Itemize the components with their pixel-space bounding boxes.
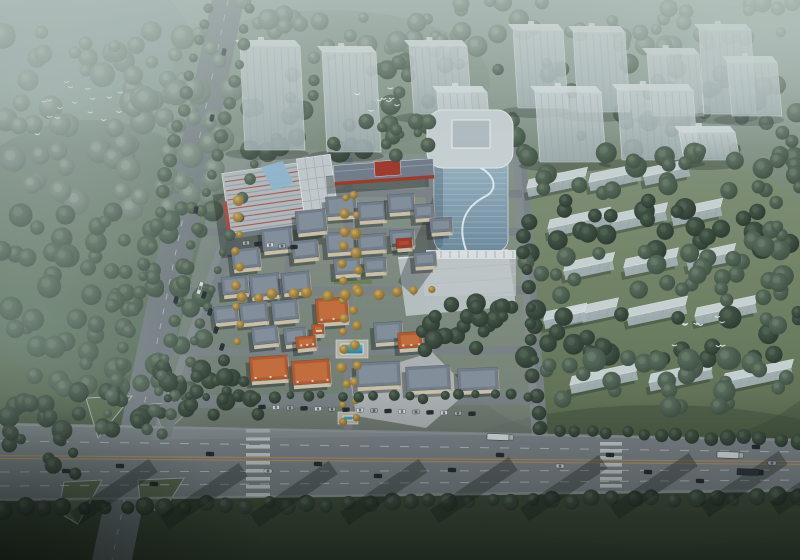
tree-highlight — [235, 213, 239, 217]
tree-highlight — [777, 436, 782, 441]
car — [752, 445, 760, 449]
car-glass — [303, 407, 305, 410]
tree-highlight — [166, 335, 172, 341]
tree-highlight — [772, 319, 779, 326]
tree-highlight — [37, 28, 42, 33]
tree-highlight — [687, 431, 693, 437]
tree-highlight — [471, 343, 477, 349]
tree-highlight — [170, 136, 175, 141]
roof-dormer — [320, 330, 322, 332]
tree-highlight — [116, 136, 126, 146]
tree-highlight — [606, 374, 613, 381]
tree-highlight — [773, 276, 781, 284]
tree-highlight — [391, 392, 395, 396]
tree-highlight — [171, 50, 177, 56]
building-roof-ridge — [433, 220, 450, 229]
tree-highlight — [216, 131, 222, 137]
car-glass — [281, 245, 284, 248]
tree-highlight — [763, 275, 770, 282]
tree-highlight — [30, 339, 39, 348]
tree-highlight — [773, 155, 779, 161]
car-glass — [345, 408, 347, 411]
building-roof-ridge — [399, 241, 409, 246]
tree-highlight — [251, 394, 256, 399]
tree-highlight — [455, 390, 459, 394]
tree-highlight — [606, 211, 612, 217]
tree-highlight — [617, 309, 623, 315]
tree-highlight — [747, 234, 755, 242]
tree-highlight — [220, 113, 226, 119]
tree-highlight — [394, 288, 398, 292]
tree-highlight — [757, 239, 765, 247]
tree-highlight — [55, 435, 60, 440]
tree-highlight — [774, 383, 780, 389]
tree-highlight — [492, 391, 496, 395]
tree-highlight — [130, 39, 137, 46]
tree-highlight — [206, 204, 214, 212]
truck-box — [487, 433, 509, 440]
car — [448, 468, 456, 472]
tree-highlight — [60, 160, 67, 167]
tree-highlight — [681, 352, 690, 361]
tree-highlight — [494, 65, 499, 70]
tree-highlight — [203, 136, 211, 144]
car — [426, 410, 433, 414]
tree-highlight — [186, 393, 189, 396]
tree-highlight — [173, 122, 178, 127]
building-roof-ridge — [417, 207, 432, 216]
tree-highlight — [92, 220, 99, 227]
tree-highlight — [121, 267, 127, 273]
tree-highlight — [411, 116, 418, 123]
tree-highlight — [139, 500, 146, 507]
car-glass — [699, 480, 702, 483]
tree-highlight — [480, 327, 485, 332]
tree-highlight — [355, 363, 358, 366]
tree-highlight — [268, 290, 272, 294]
tree-highlight — [499, 313, 503, 317]
car-glass — [457, 412, 459, 415]
car-glass — [317, 463, 320, 466]
tree-highlight — [702, 231, 709, 238]
tree-highlight — [722, 295, 727, 300]
tree-highlight — [204, 394, 207, 397]
tree-highlight — [442, 392, 446, 396]
village-building — [245, 355, 290, 389]
tree-highlight — [623, 352, 629, 358]
tree-highlight — [352, 230, 356, 234]
tree-highlight — [246, 175, 251, 180]
tree-highlight — [651, 354, 659, 362]
tree-highlight — [288, 393, 291, 396]
tree-highlight — [676, 344, 683, 351]
tree-highlight — [214, 151, 219, 156]
tree-highlight — [407, 393, 411, 397]
car-glass — [245, 242, 248, 245]
tree-highlight — [713, 400, 720, 407]
car-glass — [443, 411, 445, 414]
tree-highlight — [81, 344, 89, 352]
tree-highlight — [491, 27, 499, 35]
tree-highlight — [323, 41, 329, 47]
tree-highlight — [794, 308, 799, 313]
ghost-tower-crown — [528, 21, 534, 25]
tree-highlight — [188, 204, 193, 209]
car — [116, 464, 124, 468]
tree-highlight — [681, 158, 687, 164]
tree-highlight — [148, 58, 153, 63]
tree-highlight — [628, 156, 634, 162]
tree-highlight — [163, 201, 170, 208]
tree-highlight — [341, 402, 344, 405]
tree-highlight — [201, 21, 205, 25]
ghost-tower-crown — [452, 83, 458, 87]
tree-highlight — [354, 212, 357, 215]
tree-highlight — [567, 497, 573, 503]
tree-highlight — [182, 263, 188, 269]
ghost-tower-top — [508, 24, 563, 30]
crosswalk-bar — [246, 477, 270, 481]
tree-highlight — [341, 346, 345, 350]
tree-highlight — [789, 168, 796, 175]
tree-highlight — [532, 391, 538, 397]
car — [264, 469, 272, 473]
ghost-tower-top — [432, 86, 487, 92]
tree-highlight — [278, 8, 286, 16]
tree-highlight — [139, 259, 144, 264]
tree-highlight — [233, 248, 236, 251]
tree-highlight — [37, 47, 44, 54]
tree-highlight — [82, 51, 90, 59]
tree-highlight — [381, 63, 389, 71]
crosswalk-bar — [246, 493, 270, 497]
car-glass — [359, 409, 361, 412]
tree-highlight — [82, 66, 87, 71]
car — [768, 461, 776, 465]
tree-highlight — [370, 392, 374, 396]
tree-highlight — [25, 397, 32, 404]
tree-highlight — [420, 345, 426, 351]
tree-highlight — [702, 353, 709, 360]
tree-highlight — [207, 161, 215, 169]
tree-highlight — [210, 410, 215, 415]
car — [290, 245, 297, 249]
car-glass — [387, 410, 389, 413]
tree-highlight — [772, 198, 777, 203]
tree-highlight — [26, 312, 35, 321]
ghost-tower-top — [404, 40, 467, 46]
tree-highlight — [758, 292, 764, 298]
tree-highlight — [624, 427, 629, 432]
ghost-tower-crown — [696, 123, 702, 127]
car — [328, 407, 335, 411]
tree-highlight — [55, 230, 64, 239]
tree-highlight — [188, 242, 192, 246]
tree-highlight — [679, 17, 685, 23]
roof-dormer — [306, 344, 308, 346]
tree-highlight — [527, 371, 533, 377]
tree-highlight — [196, 320, 200, 324]
roof-dormer — [297, 381, 299, 383]
tree-highlight — [720, 350, 729, 359]
car — [496, 453, 504, 457]
tree-highlight — [590, 211, 596, 217]
tree-highlight — [689, 220, 697, 228]
tree-highlight — [192, 387, 198, 393]
tree-highlight — [184, 302, 192, 310]
tree-highlight — [106, 266, 112, 272]
tree-highlight — [133, 416, 139, 422]
tree-highlight — [251, 161, 254, 164]
tree-highlight — [671, 430, 676, 435]
tree-highlight — [472, 302, 478, 308]
tree-highlight — [70, 312, 78, 320]
tree-highlight — [135, 191, 142, 198]
tree-highlight — [534, 408, 540, 414]
tree-highlight — [341, 210, 345, 214]
tree-highlight — [111, 42, 116, 47]
tree-highlight — [653, 25, 657, 29]
tree-highlight — [673, 207, 678, 212]
retail-red-unit — [374, 160, 401, 177]
car-glass — [415, 411, 417, 414]
tree-highlight — [338, 364, 342, 368]
crosswalk-bar — [600, 477, 622, 481]
tree-highlight — [46, 245, 54, 253]
car-glass — [331, 408, 333, 411]
tree-highlight — [773, 4, 779, 10]
tree-highlight — [127, 69, 135, 77]
tree-highlight — [778, 29, 782, 33]
tree-highlight — [340, 419, 343, 422]
tree-highlight — [156, 388, 160, 392]
tree-highlight — [674, 313, 679, 318]
car-glass — [267, 470, 270, 473]
tree-highlight — [600, 228, 608, 236]
tree-highlight — [341, 278, 344, 281]
tree-highlight — [681, 6, 687, 12]
tree-highlight — [524, 282, 530, 288]
roof-dormer — [255, 377, 257, 379]
tree-highlight — [21, 251, 28, 258]
tree-highlight — [341, 229, 345, 233]
tree-highlight — [280, 21, 286, 27]
tree-highlight — [344, 498, 350, 504]
crosswalk-bar — [600, 449, 622, 453]
tree-highlight — [233, 282, 237, 286]
ghost-tower-top — [674, 126, 735, 132]
tree-highlight — [226, 231, 231, 236]
tree-highlight — [177, 204, 183, 210]
ghost-tower-top — [317, 46, 376, 52]
tree-highlight — [94, 66, 104, 76]
tree-highlight — [163, 146, 170, 153]
tree-highlight — [129, 305, 134, 310]
car — [374, 474, 382, 478]
tree-highlight — [160, 169, 166, 175]
tree-highlight — [20, 500, 28, 508]
building-roof-ridge — [461, 370, 496, 388]
tree-highlight — [318, 392, 321, 395]
tree-highlight — [53, 183, 62, 192]
tree-highlight — [771, 489, 779, 497]
tree-highlight — [361, 116, 367, 122]
tree-highlight — [715, 222, 722, 229]
tree-highlight — [661, 374, 668, 381]
tree-highlight — [45, 412, 51, 418]
ghost-tower-crown — [258, 37, 264, 41]
tree-highlight — [39, 398, 46, 405]
tree-highlight — [582, 226, 590, 234]
tree-highlight — [183, 146, 193, 156]
tree-highlight — [571, 427, 576, 432]
ghost-tower-crown — [338, 43, 344, 47]
tree-highlight — [32, 223, 38, 229]
tree-highlight — [234, 304, 237, 307]
tree-highlight — [124, 503, 129, 508]
tree-highlight — [663, 2, 670, 9]
car — [286, 406, 293, 410]
car — [384, 409, 391, 413]
tree-highlight — [322, 501, 327, 506]
tree-highlight — [223, 387, 227, 391]
tree-highlight — [411, 287, 414, 290]
tree-highlight — [561, 196, 566, 201]
tree-highlight — [171, 392, 176, 397]
tree-highlight — [635, 27, 641, 33]
tree-highlight — [145, 24, 153, 32]
car — [342, 408, 349, 412]
tree-highlight — [240, 378, 244, 382]
car-glass — [471, 412, 473, 415]
tree-highlight — [793, 436, 799, 442]
tree-highlight — [383, 140, 387, 144]
glass-tower-podium — [426, 250, 516, 259]
building-roof-ridge — [417, 254, 434, 263]
tree-highlight — [586, 492, 593, 499]
tree-highlight — [167, 410, 172, 415]
roof-dormer — [410, 344, 412, 346]
car — [644, 470, 652, 474]
tree-highlight — [354, 322, 358, 326]
tree-highlight — [790, 106, 798, 114]
tree-highlight — [524, 216, 530, 222]
tree-highlight — [305, 392, 309, 396]
car — [370, 408, 377, 412]
tree-highlight — [638, 356, 646, 364]
tree-highlight — [781, 372, 787, 378]
tree-highlight — [574, 179, 580, 185]
tree-highlight — [342, 291, 346, 295]
truck-cab — [509, 435, 514, 440]
car — [62, 469, 70, 473]
car — [300, 406, 307, 410]
tree-highlight — [556, 427, 561, 432]
tree-highlight — [723, 185, 730, 192]
tree-highlight — [209, 287, 212, 290]
tree-highlight — [105, 410, 109, 414]
tree-highlight — [527, 320, 532, 325]
tree-highlight — [752, 491, 759, 498]
tree-highlight — [535, 424, 540, 429]
car — [606, 453, 614, 457]
truck-cab — [739, 453, 744, 458]
building-roof-ridge — [254, 328, 275, 342]
ghost-tower-crown — [426, 37, 432, 41]
tree-highlight — [340, 394, 344, 398]
roof-dormer — [311, 380, 313, 382]
tree-highlight — [120, 236, 125, 241]
ghost-tower-top — [722, 56, 777, 62]
tree-highlight — [344, 381, 347, 384]
tree-highlight — [13, 120, 20, 127]
tree-highlight — [707, 434, 713, 440]
tree-highlight — [538, 172, 545, 179]
tree-highlight — [642, 214, 648, 220]
ghost-tower-crown — [715, 21, 721, 25]
tree-highlight — [390, 34, 399, 43]
tree-highlight — [728, 253, 734, 259]
car — [398, 409, 405, 413]
tree-highlight — [587, 352, 597, 362]
tree-highlight — [539, 184, 545, 190]
tree-highlight — [91, 142, 101, 152]
tree-highlight — [72, 385, 80, 393]
tree-highlight — [430, 287, 433, 290]
tree-highlight — [707, 341, 713, 347]
tree-highlight — [185, 72, 189, 76]
tree-highlight — [179, 277, 185, 283]
tree-highlight — [353, 249, 357, 253]
tree-highlight — [489, 496, 494, 501]
truck-box — [737, 468, 759, 475]
tree-highlight — [152, 355, 159, 362]
car-glass — [559, 465, 562, 468]
tree-highlight — [240, 26, 244, 30]
tree-highlight — [754, 182, 759, 187]
ghost-tower-crown — [589, 23, 595, 27]
tree-highlight — [456, 25, 464, 33]
tree-highlight — [691, 492, 698, 499]
tree-highlight — [48, 459, 55, 466]
tree-highlight — [756, 161, 764, 169]
car-glass — [119, 465, 122, 468]
tree-highlight — [552, 270, 557, 275]
tree-highlight — [470, 39, 478, 47]
tree-highlight — [303, 289, 307, 293]
tree-highlight — [203, 189, 207, 193]
ghost-tower-crown — [742, 53, 748, 57]
tree-highlight — [582, 332, 588, 338]
tree-highlight — [148, 243, 153, 248]
tree-highlight — [415, 130, 418, 133]
car — [356, 408, 363, 412]
car-glass — [153, 483, 156, 486]
tree-highlight — [745, 356, 753, 364]
tree-highlight — [165, 396, 168, 399]
tree-highlight — [567, 337, 575, 345]
building-roof-ridge — [359, 364, 398, 384]
tree-highlight — [97, 423, 102, 428]
tree-highlight — [790, 160, 796, 166]
tree-highlight — [489, 313, 496, 320]
tree-highlight — [391, 151, 397, 157]
tree-highlight — [729, 154, 736, 161]
tree-highlight — [739, 431, 745, 437]
tree-highlight — [552, 327, 559, 334]
tree-highlight — [324, 292, 328, 296]
tree-highlight — [158, 501, 166, 509]
